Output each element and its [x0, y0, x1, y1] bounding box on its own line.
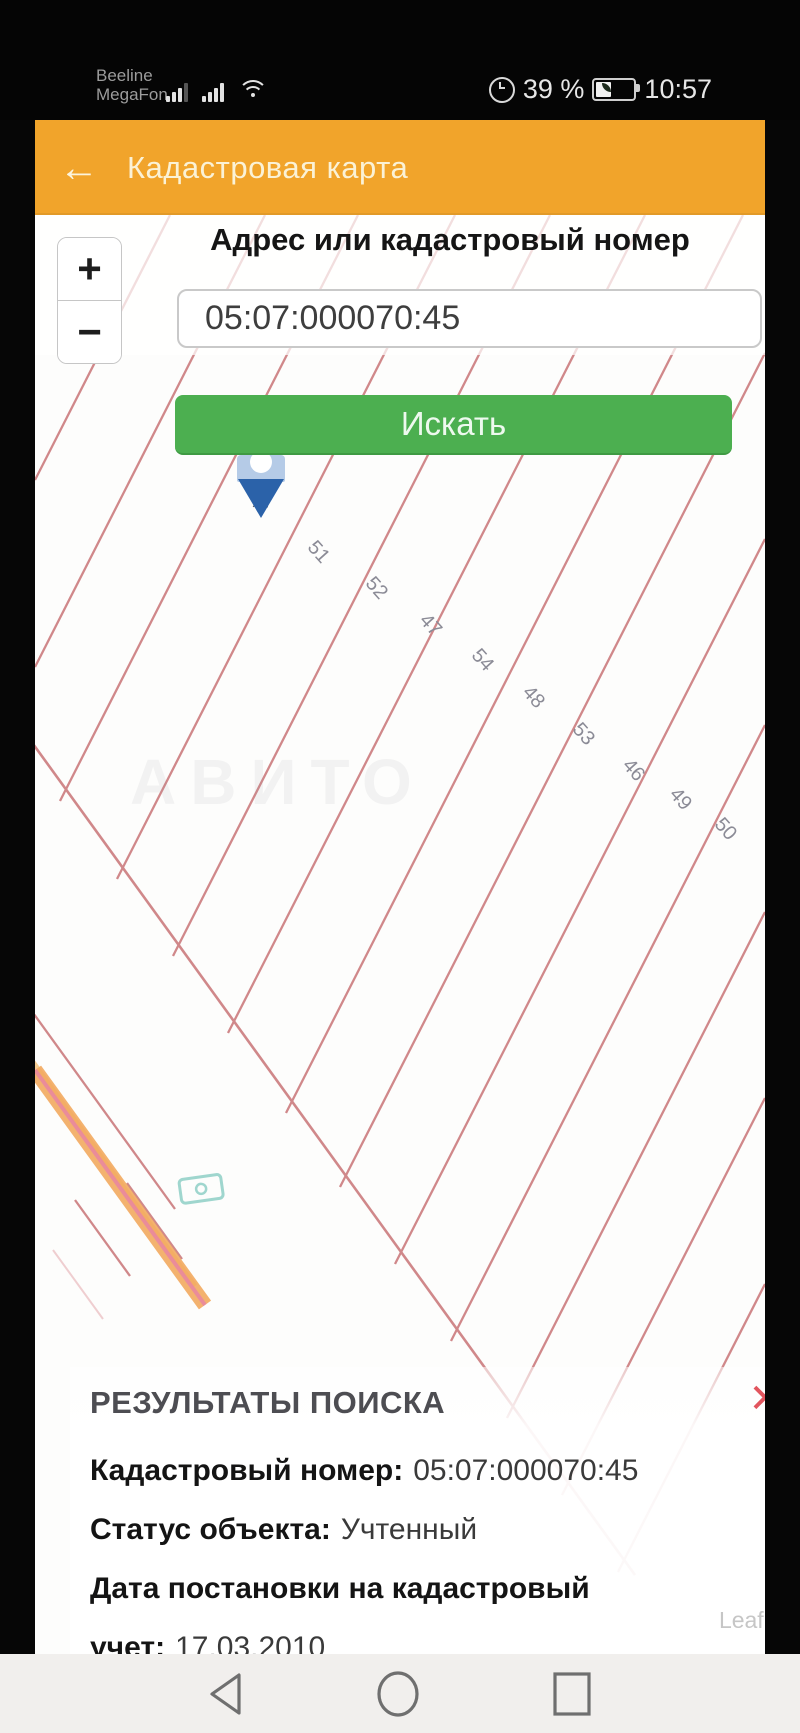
photo-watermark-icon	[179, 1174, 224, 1204]
result-label: Кадастровый номер:	[90, 1454, 403, 1487]
wifi-icon	[238, 80, 268, 102]
status-bar: Beeline MegaFon 39 % 10:57	[0, 0, 800, 120]
search-label: Адрес или кадастровый номер	[145, 222, 755, 258]
result-value: Учтенный	[341, 1513, 477, 1546]
recents-square-icon[interactable]	[550, 1670, 594, 1718]
map-attribution: Leaflet	[719, 1607, 765, 1634]
home-circle-icon[interactable]	[374, 1670, 422, 1718]
page-title: Кадастровая карта	[127, 150, 408, 186]
result-row: Кадастровый номер:05:07:000070:45	[90, 1441, 765, 1500]
carrier-1: Beeline	[96, 66, 168, 85]
carrier-2: MegaFon	[96, 85, 168, 104]
battery-icon	[592, 78, 636, 101]
signal-strength-icon-sim1	[166, 83, 188, 102]
avito-watermark: АВИТО	[130, 745, 426, 819]
cadastral-number-input[interactable]	[177, 289, 762, 348]
signal-strength-icon-sim2	[202, 83, 224, 102]
result-row: Дата постановки на кадастровый учет:17.0…	[90, 1559, 765, 1654]
carrier-labels: Beeline MegaFon	[96, 66, 168, 104]
alarm-clock-icon	[489, 77, 515, 103]
zoom-out-button[interactable]: −	[58, 300, 121, 363]
zoom-in-button[interactable]: +	[58, 238, 121, 300]
letterbox-right	[765, 120, 800, 1654]
result-label: Статус объекта:	[90, 1513, 331, 1546]
map-zoom-control: + −	[57, 237, 122, 364]
back-triangle-icon[interactable]	[206, 1670, 246, 1718]
close-icon[interactable]: ✕	[748, 1379, 765, 1419]
result-row: Статус объекта:Учтенный	[90, 1500, 765, 1559]
battery-percent: 39 %	[523, 74, 585, 105]
result-value: 05:07:000070:45	[413, 1454, 638, 1487]
app-header: ← Кадастровая карта	[35, 120, 765, 215]
search-button[interactable]: Искать	[175, 395, 732, 455]
map-viewport[interactable]: АВИТО 45 51 52 47 54 48 53 46 49 50 + − …	[35, 215, 765, 1654]
back-arrow-icon[interactable]: ←	[59, 148, 99, 188]
clock-time: 10:57	[644, 74, 712, 105]
letterbox-left	[0, 120, 35, 1654]
search-results-panel: РЕЗУЛЬТАТЫ ПОИСКА ✕ Кадастровый номер:05…	[70, 1367, 765, 1654]
map-pin-marker	[237, 455, 285, 519]
results-title: РЕЗУЛЬТАТЫ ПОИСКА	[90, 1385, 445, 1421]
system-navbar	[0, 1654, 800, 1733]
result-value: 17.03.2010	[175, 1631, 325, 1654]
result-label: Дата постановки на кадастровый учет:	[90, 1572, 590, 1654]
